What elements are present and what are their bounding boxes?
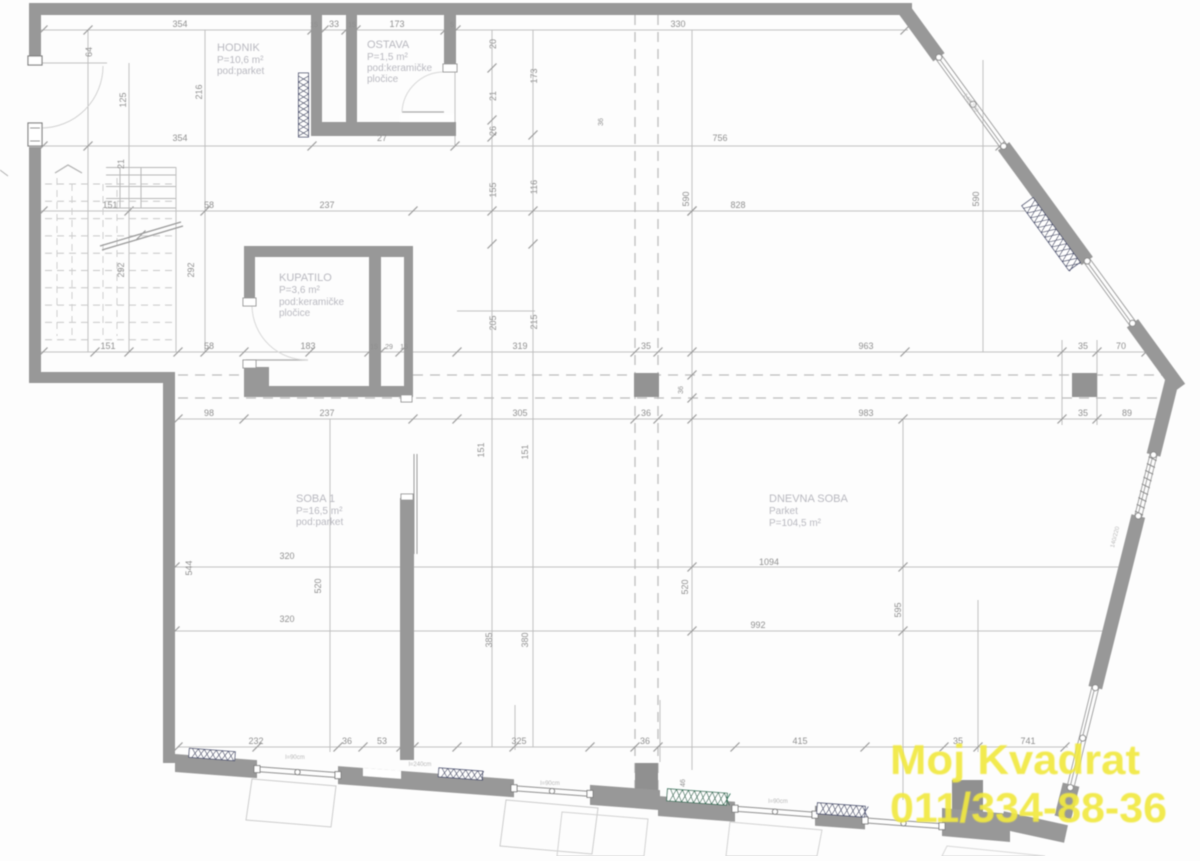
svg-text:215: 215 [529,314,539,329]
svg-text:116: 116 [529,180,539,194]
svg-text:15: 15 [400,344,408,351]
svg-text:SOBA 1: SOBA 1 [296,493,335,505]
svg-text:319: 319 [512,341,527,351]
svg-text:305: 305 [512,408,527,418]
svg-text:35: 35 [1078,341,1088,351]
svg-text:15: 15 [370,344,378,351]
svg-text:pločice: pločice [279,308,311,319]
svg-text:35: 35 [641,341,651,351]
svg-text:590: 590 [971,191,981,206]
svg-text:l=90cm: l=90cm [285,755,305,761]
svg-text:385: 385 [484,632,494,647]
svg-text:58: 58 [204,200,214,210]
svg-text:983: 983 [858,408,873,418]
svg-text:415: 415 [792,736,807,746]
svg-text:354: 354 [172,133,187,143]
svg-text:l=240cm: l=240cm [409,762,432,768]
svg-text:151: 151 [102,200,117,210]
svg-text:380: 380 [520,632,530,647]
svg-text:173: 173 [529,68,539,83]
svg-text:98: 98 [204,408,214,418]
svg-text:pod:parket: pod:parket [217,66,264,77]
svg-text:l=90cm: l=90cm [768,799,788,805]
svg-text:DNEVNA SOBA: DNEVNA SOBA [769,493,849,505]
svg-text:125: 125 [118,92,128,107]
svg-text:232: 232 [248,736,263,746]
svg-text:011/334-88-36: 011/334-88-36 [890,784,1167,831]
svg-text:70: 70 [1116,341,1126,351]
svg-text:53: 53 [377,736,387,746]
svg-text:pod:keramičke: pod:keramičke [367,63,432,74]
svg-text:pod:keramičke: pod:keramičke [279,297,344,308]
svg-text:15: 15 [310,22,318,29]
svg-text:89: 89 [1122,408,1132,418]
svg-text:544: 544 [184,560,194,575]
svg-text:21: 21 [116,159,126,169]
svg-text:183: 183 [300,341,315,351]
svg-text:27: 27 [377,133,387,143]
svg-text:P=1,5 m²: P=1,5 m² [367,52,409,63]
svg-text:15: 15 [348,22,356,29]
svg-text:36: 36 [678,386,685,394]
svg-text:520: 520 [313,578,323,593]
svg-text:5: 5 [450,22,454,29]
svg-text:330: 330 [670,19,685,29]
svg-text:KUPATILO: KUPATILO [279,272,332,284]
svg-text:828: 828 [730,200,745,210]
svg-text:HODNIK: HODNIK [217,42,260,54]
svg-text:151: 151 [520,444,530,459]
svg-text:pod:parket: pod:parket [296,517,343,528]
svg-text:35: 35 [1078,408,1088,418]
svg-text:l=90cm: l=90cm [540,781,560,787]
svg-text:36: 36 [640,736,650,746]
svg-text:20: 20 [488,39,498,49]
svg-text:26: 26 [488,126,498,136]
svg-text:P=3,6 m²: P=3,6 m² [279,285,321,296]
svg-text:292: 292 [116,262,126,277]
svg-text:320: 320 [279,614,294,624]
svg-text:P=10,6 m²: P=10,6 m² [217,55,264,66]
svg-text:64: 64 [84,47,94,57]
svg-text:36: 36 [598,118,605,126]
svg-text:1094: 1094 [759,557,779,567]
svg-text:Parket: Parket [769,506,798,517]
svg-text:237: 237 [319,408,334,418]
svg-text:P=104,5 m²: P=104,5 m² [769,518,822,529]
svg-text:237: 237 [319,200,334,210]
svg-text:320: 320 [279,551,294,561]
svg-text:Moj Kvadrat: Moj Kvadrat [890,736,1140,783]
svg-text:58: 58 [204,341,214,351]
svg-text:963: 963 [858,341,873,351]
svg-text:P=16,5 m²: P=16,5 m² [296,506,343,517]
svg-text:590: 590 [681,191,691,206]
svg-text:992: 992 [750,620,765,630]
svg-text:155: 155 [488,182,498,197]
svg-text:36: 36 [641,408,651,418]
svg-text:325: 325 [511,736,526,746]
svg-text:33: 33 [329,19,339,29]
svg-text:216: 216 [194,84,204,99]
svg-text:151: 151 [100,341,115,351]
svg-text:354: 354 [172,19,187,29]
svg-text:21: 21 [488,91,498,101]
svg-text:292: 292 [186,262,196,277]
svg-text:595: 595 [893,602,903,617]
svg-text:OSTAVA: OSTAVA [367,39,410,51]
svg-text:756: 756 [712,133,727,143]
svg-text:520: 520 [680,579,690,594]
svg-text:46: 46 [680,779,687,787]
svg-text:151: 151 [476,442,486,457]
svg-text:pločice: pločice [367,74,399,85]
svg-text:29: 29 [385,344,393,351]
svg-text:205: 205 [488,315,498,330]
svg-text:173: 173 [389,19,404,29]
svg-text:36: 36 [342,736,352,746]
